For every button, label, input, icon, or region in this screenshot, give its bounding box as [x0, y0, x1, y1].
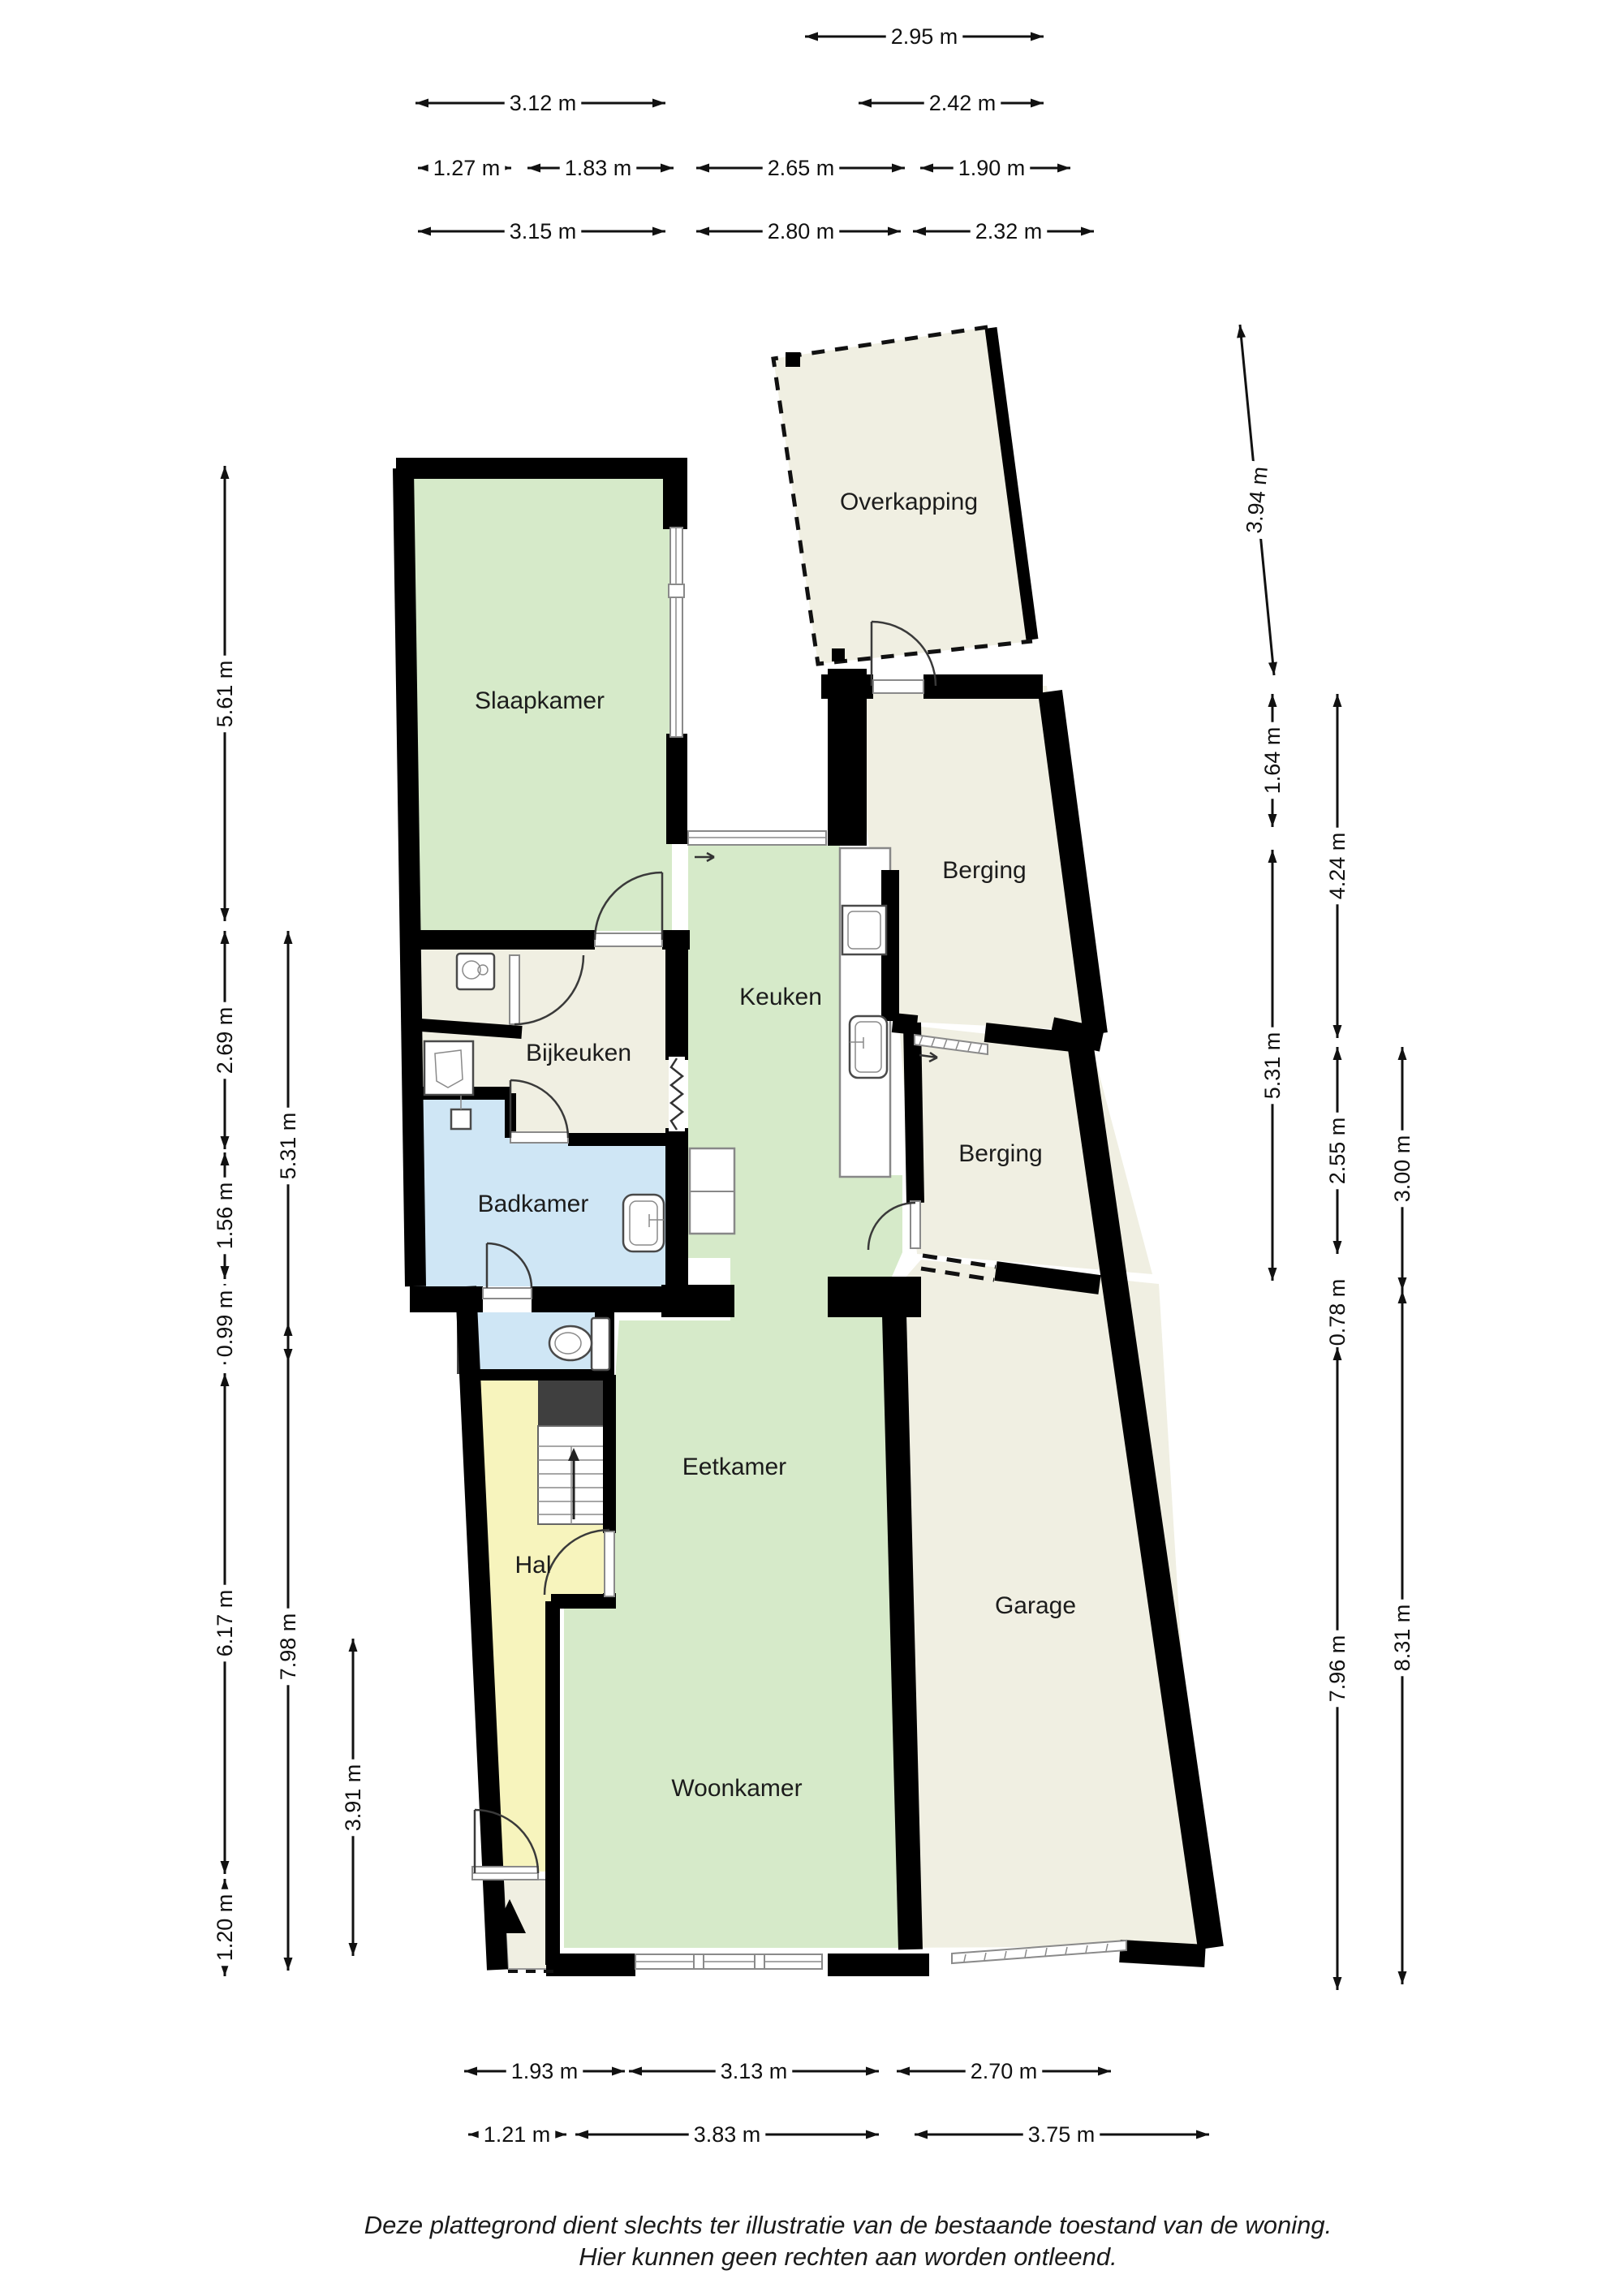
wall-eetkamer-garage [894, 1315, 911, 1949]
dimension-arrowhead [1333, 1241, 1342, 1254]
dimension-arrowhead [915, 2130, 928, 2139]
dimension-label: 2.69 m [213, 1007, 237, 1075]
dimension-arrowhead [888, 227, 901, 236]
room-label-keuken: Keuken [739, 984, 822, 1010]
room-label-berging-1: Berging [942, 857, 1026, 884]
room-label-overkapping: Overkapping [840, 489, 978, 515]
dimension-arrowhead [892, 164, 905, 173]
dimension-4.24-m-21: 4.24 m [1324, 694, 1350, 1038]
shower-icon [451, 1109, 471, 1129]
dimension-label: 2.70 m [971, 2059, 1038, 2083]
dimension-7.96-m-26: 7.96 m [1324, 1347, 1350, 1990]
dimension-3.00-m-24: 3.00 m [1389, 1047, 1415, 1290]
dimension-2.69-m-11: 2.69 m [212, 931, 238, 1149]
door-leaf-keuken-berging [911, 1201, 920, 1248]
dimension-arrowhead [866, 2067, 879, 2076]
dimension-arrowhead [349, 1943, 358, 1956]
dimension-label: 1.90 m [958, 156, 1026, 180]
door-leaf-hal-eetkamer [605, 1531, 614, 1596]
dimension-label: 2.65 m [768, 156, 835, 180]
overkapping-post-bottom [832, 648, 845, 661]
dimension-3.15-m-7: 3.15 m [418, 218, 665, 244]
dimension-arrowhead [415, 99, 428, 108]
dimension-3.12-m-1: 3.12 m [415, 90, 665, 116]
threshold-badkamer-door [510, 1132, 568, 1143]
dimension-label: 3.15 m [510, 219, 577, 243]
dimension-label: 1.27 m [433, 156, 501, 180]
dimension-arrowhead [221, 1266, 230, 1279]
dimension-label: 1.20 m [213, 1894, 237, 1962]
wall-eetkamer-tbar [828, 1277, 921, 1317]
dimension-1.21-m-31: 1.21 m [468, 2122, 566, 2147]
dimension-arrowhead [1398, 1971, 1407, 1984]
dimension-label: 3.91 m [341, 1764, 365, 1832]
wall-block-badkamer-corner [661, 1285, 734, 1317]
dimension-label: 1.56 m [213, 1182, 237, 1250]
dimension-label: 2.55 m [1325, 1118, 1350, 1185]
room-label-eetkamer: Eetkamer [682, 1454, 786, 1480]
dimension-3.94-m-19: 3.94 m [1237, 325, 1277, 675]
dimension-0.99-m-13: 0.99 m [212, 1284, 238, 1364]
dimension-label: 2.32 m [975, 219, 1043, 243]
dimension-arrowhead [913, 227, 926, 236]
dimension-8.31-m-27: 8.31 m [1389, 1290, 1415, 1984]
dimension-1.93-m-28: 1.93 m [464, 2058, 625, 2084]
window-slaapkamer-divider [669, 584, 684, 597]
dimension-arrowhead [553, 2130, 566, 2139]
dimension-arrowhead [859, 99, 872, 108]
dimension-arrowhead [221, 466, 230, 479]
dimension-arrowhead [920, 164, 933, 173]
door-leaf-nook [510, 955, 519, 1024]
room-label-bijkeuken: Bijkeuken [526, 1040, 631, 1066]
room-label-garage: Garage [995, 1592, 1076, 1619]
dimension-arrowhead [464, 2067, 477, 2076]
dimension-label: 8.31 m [1390, 1605, 1414, 1672]
dimension-label: 2.95 m [891, 24, 958, 49]
disclaimer-line-1: Deze plattegrond dient slechts ter illus… [364, 2211, 1332, 2239]
dimension-arrowhead [284, 931, 293, 944]
room-label-badkamer: Badkamer [478, 1191, 589, 1217]
dimension-arrowhead [1196, 2130, 1209, 2139]
dimension-arrowhead [866, 2130, 879, 2139]
dimension-label: 3.83 m [694, 2122, 761, 2147]
room-label-berging-2: Berging [958, 1140, 1042, 1167]
dimension-2.32-m-9: 2.32 m [913, 218, 1094, 244]
dimension-arrowhead [1268, 1268, 1277, 1281]
dimension-arrowhead [221, 1136, 230, 1149]
dimension-label: 1.64 m [1260, 727, 1285, 795]
overkapping-post-top [786, 352, 800, 367]
dimension-label: 1.93 m [511, 2059, 579, 2083]
dimension-arrowhead [1081, 227, 1094, 236]
dimension-label: 3.12 m [510, 91, 577, 115]
dimension-1.20-m-15: 1.20 m [212, 1879, 238, 1976]
dimension-label: 0.99 m [213, 1290, 237, 1358]
window-woonkamer-divider-1 [694, 1954, 704, 1969]
dimension-arrowhead [1333, 1025, 1342, 1038]
dimension-0.78-m-25: 0.78 m [1324, 1274, 1350, 1351]
dimension-2.42-m-2: 2.42 m [859, 90, 1044, 116]
dimension-label: 1.83 m [565, 156, 632, 180]
dimension-label: 7.96 m [1325, 1635, 1350, 1703]
room-label-slaapkamer: Slaapkamer [475, 687, 605, 714]
dimension-1.56-m-12: 1.56 m [212, 1152, 238, 1279]
dimension-arrowhead [1333, 1977, 1342, 1990]
dimension-2.80-m-8: 2.80 m [696, 218, 901, 244]
dimension-arrowhead [221, 1373, 230, 1386]
dimension-arrowhead [418, 227, 431, 236]
dimension-label: 5.31 m [1260, 1032, 1285, 1100]
floorplan-page: { "plan_type": "floorplan", "rooms": [ {… [0, 0, 1623, 2296]
dimension-label: 3.94 m [1242, 465, 1272, 534]
dimension-arrowhead [1031, 32, 1044, 41]
dimension-arrowhead [1268, 850, 1277, 863]
dimension-label: 3.13 m [721, 2059, 788, 2083]
dimension-7.98-m-17: 7.98 m [275, 1323, 301, 1971]
wall-berging2-left [912, 1023, 915, 1203]
dimension-6.17-m-14: 6.17 m [212, 1373, 238, 1874]
dimension-label: 5.61 m [213, 661, 237, 728]
dimension-arrowhead [575, 2130, 588, 2139]
dimension-arrowhead [284, 1958, 293, 1971]
threshold-toilet-door [483, 1288, 532, 1299]
dimension-arrowhead [1098, 2067, 1111, 2076]
wall-outer-left-upper [403, 468, 415, 1286]
dimension-arrowhead [1268, 814, 1277, 827]
toilet-tank [592, 1318, 609, 1370]
threshold-overkapping-door [873, 680, 923, 693]
dimension-2.65-m-5: 2.65 m [696, 155, 905, 181]
dimension-arrowhead [221, 1861, 230, 1874]
dimension-label: 6.17 m [213, 1590, 237, 1657]
wall-garage-bottom-corner [1120, 1951, 1205, 1956]
room-label-woonkamer: Woonkamer [671, 1775, 802, 1802]
dimension-label: 5.31 m [276, 1113, 300, 1180]
dimension-3.13-m-29: 3.13 m [629, 2058, 879, 2084]
disclaimer-line-2: Hier kunnen geen rechten aan worden ontl… [579, 2242, 1117, 2271]
dimension-arrowhead [652, 99, 665, 108]
dimension-2.70-m-30: 2.70 m [897, 2058, 1111, 2084]
dimension-1.27-m-3: 1.27 m [418, 155, 511, 181]
dimension-arrowhead [1398, 1277, 1407, 1290]
dimension-1.83-m-4: 1.83 m [527, 155, 674, 181]
dimension-arrowhead [1031, 99, 1044, 108]
dimension-arrowhead [221, 931, 230, 944]
toilet-icon [549, 1326, 592, 1360]
dimension-arrowhead [897, 2067, 910, 2076]
dimension-arrowhead [1057, 164, 1070, 173]
dimension-arrowhead [1333, 694, 1342, 707]
dimension-label: 2.80 m [768, 219, 835, 243]
dimension-arrowhead [527, 164, 540, 173]
dimension-arrowhead [1398, 1290, 1407, 1303]
dimension-arrowhead [629, 2067, 642, 2076]
dimension-arrowhead [805, 32, 818, 41]
dimension-label: 4.24 m [1325, 833, 1350, 900]
dimension-5.61-m-10: 5.61 m [212, 466, 238, 921]
dimension-label: 0.78 m [1325, 1279, 1350, 1346]
dimension-2.55-m-23: 2.55 m [1324, 1047, 1350, 1254]
dimension-3.91-m-18: 3.91 m [340, 1639, 366, 1956]
dimension-arrowhead [1398, 1047, 1407, 1060]
dimension-arrowhead [696, 227, 709, 236]
floorplan-canvas: 2.95 m3.12 m2.42 m1.27 m1.83 m2.65 m1.90… [0, 0, 1623, 2296]
dimension-arrowhead [1333, 1047, 1342, 1060]
threshold-slaapkamer-door [595, 933, 662, 946]
dimension-arrowhead [696, 164, 709, 173]
dimension-label: 3.00 m [1390, 1135, 1414, 1203]
staircase [538, 1380, 605, 1524]
dimension-label: 7.98 m [276, 1613, 300, 1681]
wall-berging2-garage [996, 1271, 1100, 1285]
dimension-arrowhead [349, 1639, 358, 1652]
dimension-arrowhead [221, 1152, 230, 1165]
room-label-hal: Hal [514, 1552, 551, 1579]
dimension-arrowhead [284, 1323, 293, 1336]
dimension-arrowhead [1268, 694, 1277, 707]
dimension-2.95-m-0: 2.95 m [805, 24, 1044, 50]
dimension-arrowhead [652, 227, 665, 236]
dimension-5.31-m-16: 5.31 m [275, 931, 301, 1362]
dimension-5.31-m-22: 5.31 m [1259, 850, 1285, 1281]
dimension-arrowhead [221, 908, 230, 921]
dimension-label: 1.21 m [484, 2122, 551, 2147]
dimension-3.83-m-32: 3.83 m [575, 2122, 879, 2147]
dimension-3.75-m-33: 3.75 m [915, 2122, 1209, 2147]
dimension-1.64-m-20: 1.64 m [1259, 694, 1285, 827]
dimension-label: 2.42 m [929, 91, 997, 115]
dimension-label: 3.75 m [1028, 2122, 1096, 2147]
wall-nook-bottom [410, 1024, 522, 1032]
dimension-1.90-m-6: 1.90 m [920, 155, 1070, 181]
dimension-arrowhead [612, 2067, 625, 2076]
dimension-arrowhead [661, 164, 674, 173]
window-woonkamer-divider-2 [755, 1954, 764, 1969]
